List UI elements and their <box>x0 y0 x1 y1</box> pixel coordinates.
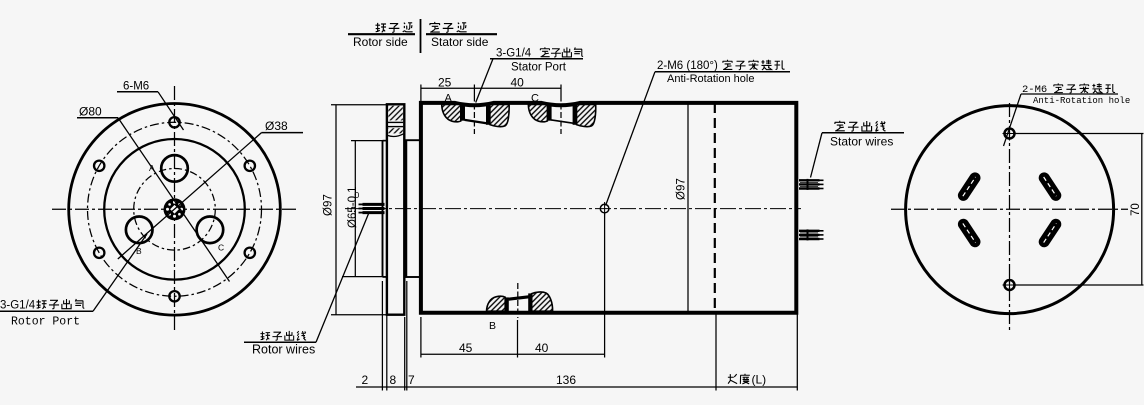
svg-text:Ø38: Ø38 <box>265 119 288 133</box>
svg-text:0: 0 <box>355 190 360 200</box>
svg-text:Ø97: Ø97 <box>676 178 688 200</box>
svg-text:40: 40 <box>511 76 525 90</box>
svg-text:C: C <box>531 93 539 105</box>
svg-text:Rotor Port: Rotor Port <box>11 316 80 329</box>
svg-text:7: 7 <box>408 373 415 387</box>
svg-text:136: 136 <box>556 373 576 387</box>
svg-text:2: 2 <box>362 373 369 387</box>
svg-text:25: 25 <box>438 76 452 90</box>
svg-text:6-M6: 6-M6 <box>123 81 149 93</box>
svg-text:Ø80: Ø80 <box>79 105 102 119</box>
svg-text:Anti-Rotation hole: Anti-Rotation hole <box>1033 96 1130 106</box>
svg-text:70: 70 <box>1130 203 1142 216</box>
svg-text:3-G1/4: 3-G1/4 <box>496 48 532 60</box>
svg-text:2-M6 (180°): 2-M6 (180°) <box>657 60 718 72</box>
svg-text:A: A <box>445 93 453 105</box>
svg-text:Stator side: Stator side <box>431 35 489 49</box>
svg-text:Rotor wires: Rotor wires <box>252 343 315 357</box>
svg-text:Stator wires: Stator wires <box>830 135 893 149</box>
svg-text:40: 40 <box>535 341 549 355</box>
svg-text:B: B <box>489 320 496 332</box>
svg-text:Rotor side: Rotor side <box>353 35 408 49</box>
svg-text:(L): (L) <box>752 373 767 387</box>
svg-text:Stator Port: Stator Port <box>511 62 567 74</box>
svg-text:Ø97: Ø97 <box>323 194 335 216</box>
svg-text:Anti-Rotation hole: Anti-Rotation hole <box>667 73 754 85</box>
svg-text:8: 8 <box>390 373 397 387</box>
svg-text:3-G1/4: 3-G1/4 <box>0 300 36 312</box>
svg-text:C: C <box>218 243 224 253</box>
svg-text:45: 45 <box>459 341 473 355</box>
